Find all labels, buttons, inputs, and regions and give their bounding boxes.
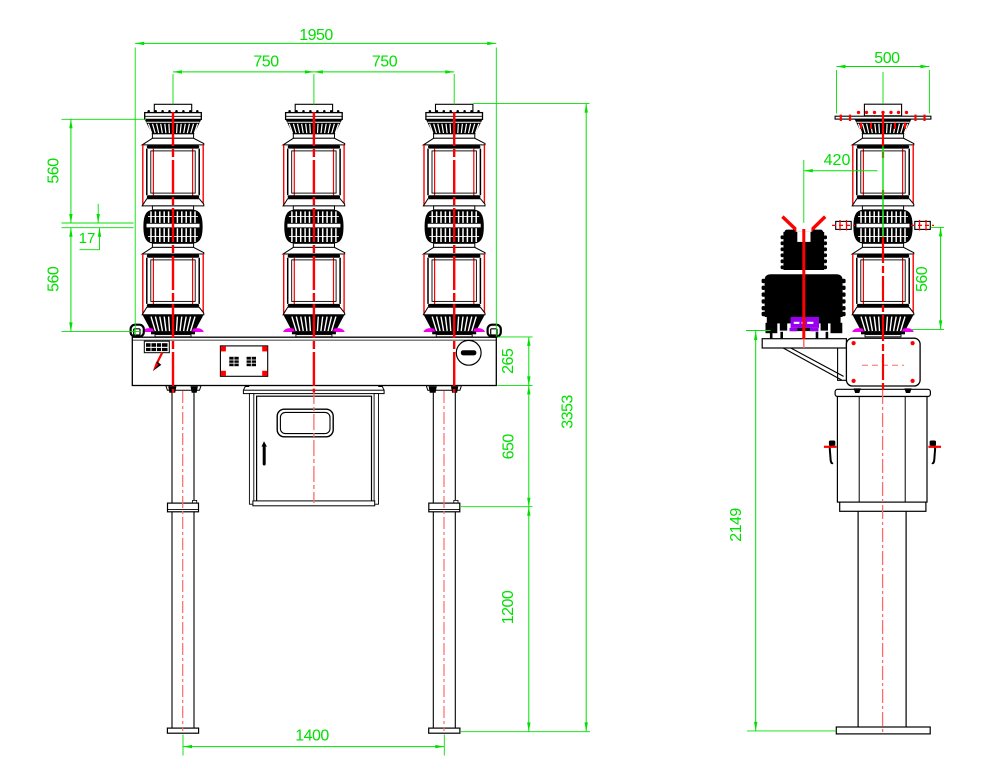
svg-text:1400: 1400: [295, 728, 329, 745]
svg-text:500: 500: [874, 50, 900, 67]
svg-text:3353: 3353: [560, 395, 577, 429]
svg-text:650: 650: [500, 434, 517, 460]
svg-text:750: 750: [253, 54, 279, 71]
svg-text:420: 420: [824, 152, 851, 169]
svg-text:17: 17: [79, 230, 96, 247]
svg-text:750: 750: [372, 54, 398, 71]
svg-text:2149: 2149: [728, 508, 745, 542]
svg-text:560: 560: [46, 266, 63, 292]
svg-text:1200: 1200: [500, 590, 517, 624]
svg-text:1950: 1950: [299, 27, 333, 44]
svg-text:560: 560: [46, 158, 63, 184]
svg-text:560: 560: [914, 266, 931, 292]
svg-text:265: 265: [500, 348, 517, 374]
